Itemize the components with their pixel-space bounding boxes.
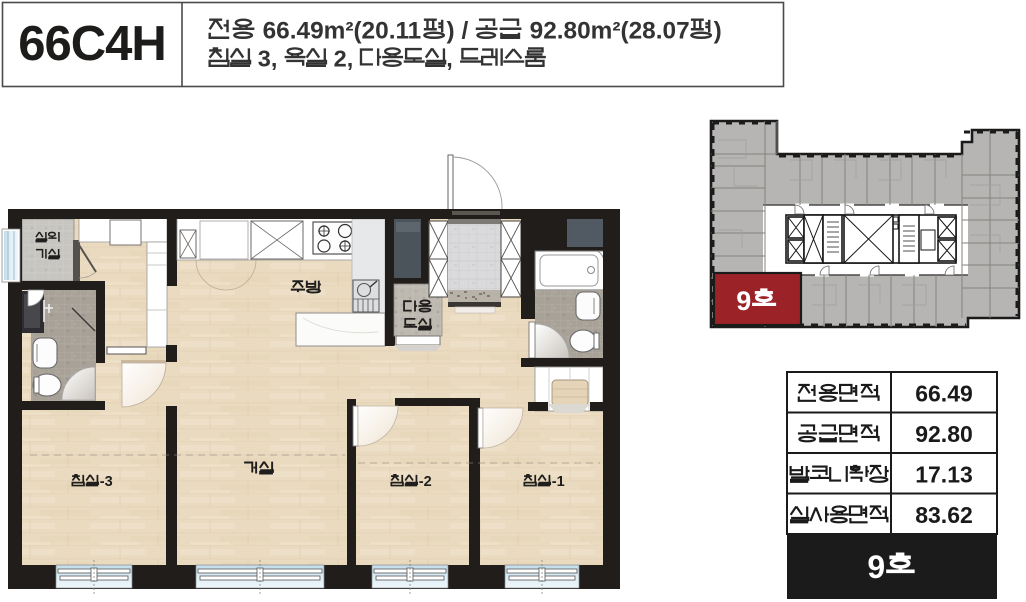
svg-text:66.49m²(20.11: 66.49m²(20.11	[263, 18, 422, 45]
svg-text:-2: -2	[419, 474, 432, 490]
svg-text:): )	[447, 18, 455, 45]
svg-text:,: ,	[446, 46, 453, 72]
svg-text:66.49: 66.49	[915, 381, 973, 407]
svg-text:92.80: 92.80	[915, 421, 973, 447]
svg-text:2,: 2,	[334, 46, 354, 72]
svg-text:17.13: 17.13	[915, 462, 973, 488]
svg-text:-1: -1	[552, 474, 565, 490]
svg-text:-3: -3	[100, 474, 113, 490]
svg-text:66C4H: 66C4H	[18, 17, 166, 71]
svg-text:3,: 3,	[258, 46, 278, 72]
svg-text:92.80m²(28.07: 92.80m²(28.07	[530, 18, 690, 45]
svg-text:9: 9	[867, 549, 885, 585]
svg-text:83.62: 83.62	[915, 502, 973, 528]
svg-text:9: 9	[736, 286, 751, 316]
svg-text:): )	[714, 18, 722, 45]
svg-text:/: /	[461, 18, 468, 45]
